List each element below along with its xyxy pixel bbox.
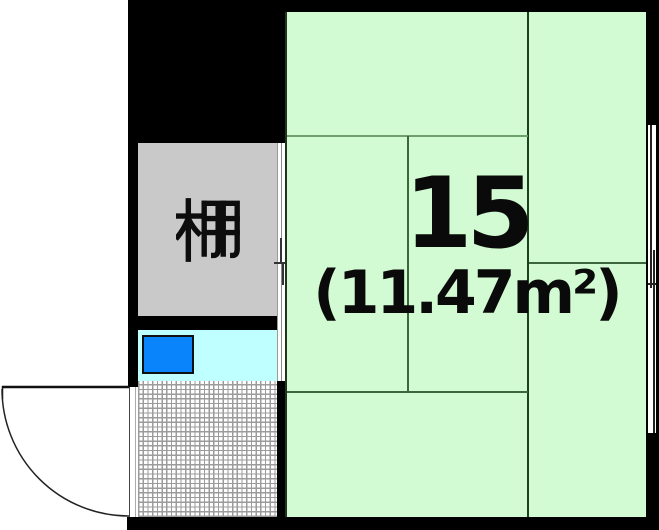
doorway-frame-line	[129, 387, 130, 517]
window-overlap-mark	[648, 283, 656, 285]
sliding-door-panel	[280, 238, 282, 264]
room-number: 15	[287, 165, 646, 263]
wall-right-lower	[646, 433, 659, 530]
wall-divider	[138, 316, 277, 330]
tatami-line	[287, 391, 528, 393]
wall-entrance-right	[277, 381, 285, 517]
main-room: 15 (11.47m²)	[285, 12, 646, 517]
sliding-door-panel	[282, 264, 284, 285]
doorway-frame-line	[135, 387, 136, 517]
window-right	[646, 125, 659, 433]
entrance-area	[138, 381, 277, 517]
wall-bottom	[127, 517, 659, 530]
sink	[142, 335, 194, 374]
sliding-door	[277, 143, 285, 381]
door-swing-arc	[2, 389, 129, 516]
adjacent-space-block	[128, 0, 286, 143]
tana-kanji-glyph	[176, 197, 240, 263]
wall-right-upper	[646, 0, 659, 125]
window-panel	[650, 125, 652, 288]
floor-plan: 棚	[0, 0, 659, 530]
window-panel	[653, 250, 655, 433]
room-area-label: (11.47m²)	[287, 263, 646, 323]
wall-left	[128, 0, 138, 387]
shelf-area: 棚	[138, 143, 277, 316]
kitchen-area	[138, 330, 277, 381]
wall-top	[128, 0, 659, 12]
